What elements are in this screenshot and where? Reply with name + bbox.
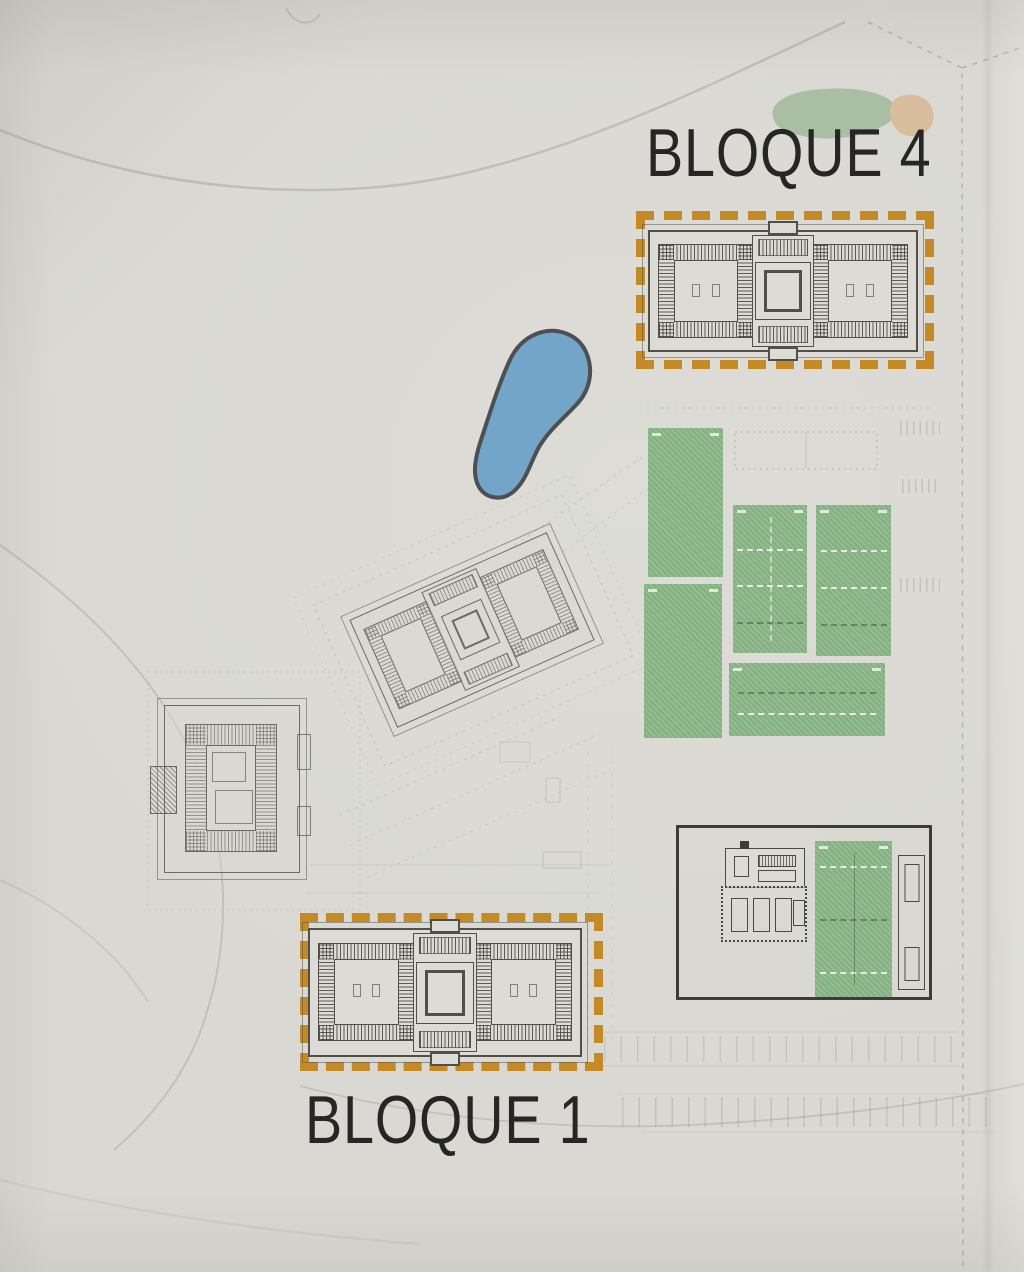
roof-hatch-band (758, 326, 808, 343)
bloque4-core (752, 235, 814, 347)
bloque1-label: BLOQUE 1 (305, 1086, 590, 1154)
room-outline (753, 898, 770, 932)
court-line (738, 713, 875, 715)
room-outline (775, 898, 792, 932)
court-line (821, 624, 887, 626)
wing-interior (380, 618, 445, 693)
room-outline (758, 870, 796, 882)
bloque1-stair-bump-bottom (430, 1052, 460, 1066)
bloque4-patio (764, 270, 802, 312)
bloque4-stair-bump-bottom (768, 347, 798, 361)
roof-hatch-band (463, 653, 513, 685)
west-building-roof-ring (185, 724, 277, 852)
lane-rect (904, 864, 919, 902)
room-outline (212, 752, 246, 782)
wing-interior (334, 959, 399, 1025)
bloque1-stair-bump-top (430, 919, 460, 933)
sports-court-wide (729, 663, 885, 736)
bloque1-east-wing (475, 943, 572, 1041)
roof-hatch-band (428, 574, 478, 606)
clubhouse-chimney (740, 841, 749, 849)
room-outline (758, 855, 796, 867)
room-outline (731, 898, 748, 932)
roof-hatch-band (419, 1031, 471, 1048)
lane-rect (904, 947, 919, 981)
room-outline (734, 856, 749, 877)
central-patio (451, 609, 490, 650)
bloque1-core (413, 933, 477, 1052)
wing-interior (491, 959, 556, 1025)
clubhouse-building (725, 848, 805, 888)
bloque4-east-wing (812, 244, 908, 338)
central-courtyard (441, 599, 501, 661)
west-building-entrance (150, 766, 177, 814)
room-outline (215, 790, 253, 824)
bloque4-label: BLOQUE 4 (646, 119, 931, 187)
bloque4-courtyard (755, 262, 811, 320)
bloque1-west-wing (318, 943, 415, 1041)
tennis-court (816, 505, 891, 656)
court-line (770, 517, 772, 641)
west-building-annex (297, 734, 311, 770)
roof-hatch-band (419, 937, 471, 954)
court-line (854, 853, 855, 984)
lap-pool-strip (898, 855, 925, 990)
bloque1-courtyard (416, 962, 474, 1024)
recreation-court (815, 841, 892, 997)
west-building (164, 705, 300, 873)
changing-rooms-building (721, 886, 807, 942)
bloque1-patio (425, 970, 465, 1016)
bloque1-building (308, 928, 582, 1057)
sports-court (648, 428, 723, 577)
court-line (821, 550, 887, 552)
room-outline (793, 900, 805, 926)
wing-interior (496, 566, 561, 641)
recreation-area (676, 825, 932, 1000)
wing-interior (674, 260, 738, 322)
tennis-court (733, 505, 807, 653)
site-plan-page: BLOQUE 4 BLOQUE 1 (0, 0, 1024, 1272)
swimming-pool (475, 331, 590, 498)
bloque4-building (648, 230, 918, 352)
sports-court (644, 584, 722, 738)
court-line (738, 692, 875, 694)
wing-interior (828, 260, 892, 322)
west-building-annex (297, 806, 311, 836)
court-line (821, 587, 887, 589)
west-building-interior (206, 745, 256, 831)
bloque4-west-wing (658, 244, 754, 338)
roof-hatch-band (758, 239, 808, 256)
bloque4-stair-bump-top (768, 221, 798, 235)
